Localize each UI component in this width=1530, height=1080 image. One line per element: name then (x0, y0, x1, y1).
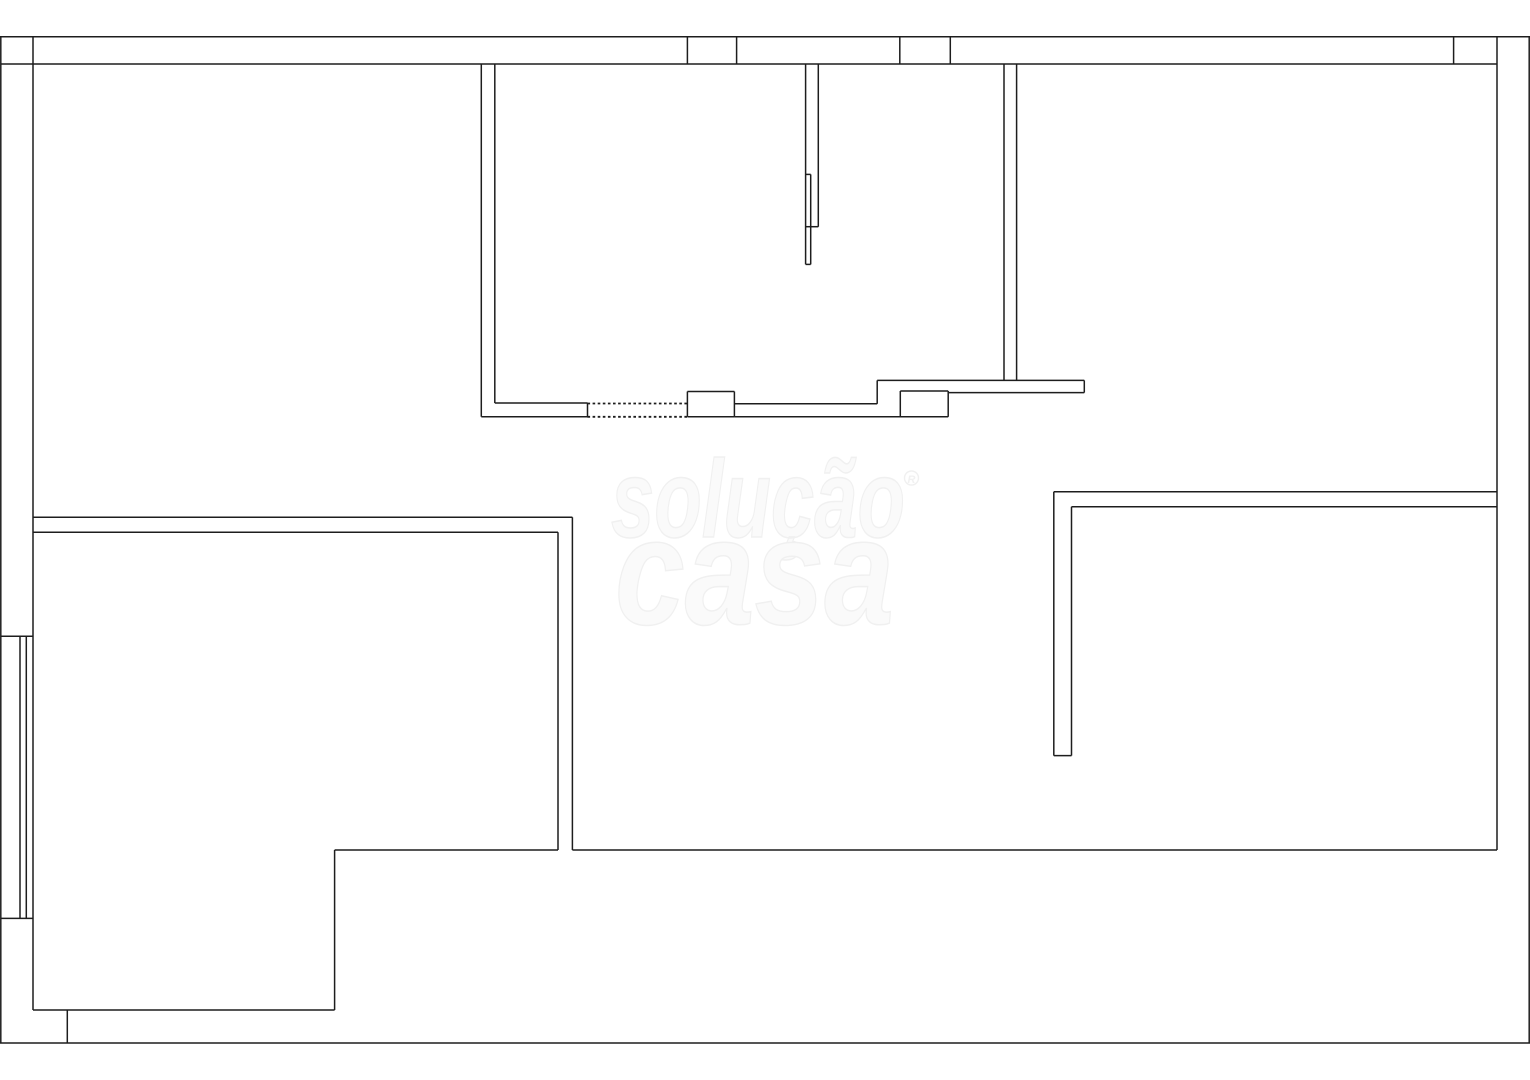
svg-text:casa: casa (615, 487, 894, 657)
svg-text:R: R (908, 474, 916, 486)
